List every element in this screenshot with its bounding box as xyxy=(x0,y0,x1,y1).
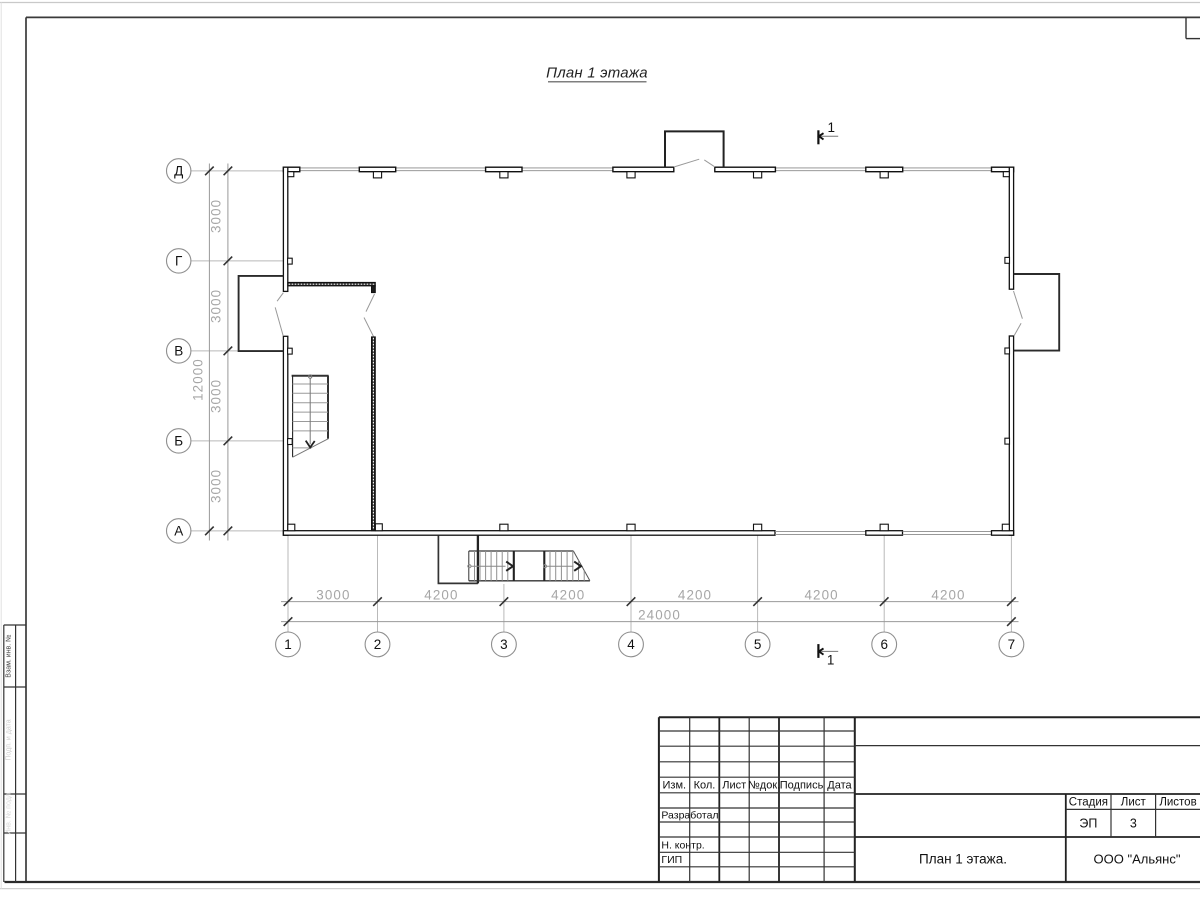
svg-text:4200: 4200 xyxy=(931,587,965,602)
svg-text:7: 7 xyxy=(1008,637,1016,652)
svg-text:Лист: Лист xyxy=(722,780,746,792)
svg-text:План 1 этажа: План 1 этажа xyxy=(546,65,648,82)
svg-text:ЭП: ЭП xyxy=(1079,817,1097,831)
svg-text:12000: 12000 xyxy=(190,358,205,401)
svg-text:Д: Д xyxy=(174,164,183,179)
svg-text:3000: 3000 xyxy=(316,587,350,602)
svg-text:3: 3 xyxy=(500,637,508,652)
svg-text:3: 3 xyxy=(1130,817,1137,831)
svg-text:Г: Г xyxy=(175,254,183,269)
svg-text:Листов: Листов xyxy=(1159,797,1196,809)
svg-text:А: А xyxy=(174,524,183,539)
svg-text:24000: 24000 xyxy=(638,607,681,622)
svg-text:Подпись: Подпись xyxy=(780,780,824,792)
svg-text:В: В xyxy=(174,344,183,359)
svg-text:Разработал: Разработал xyxy=(661,810,718,822)
svg-text:Б: Б xyxy=(174,434,183,449)
svg-text:3000: 3000 xyxy=(208,289,223,323)
svg-text:План 1 этажа.: План 1 этажа. xyxy=(919,852,1007,867)
svg-text:2: 2 xyxy=(374,637,382,652)
svg-text:Инв. № подл.: Инв. № подл. xyxy=(6,791,13,835)
svg-text:6: 6 xyxy=(880,637,888,652)
svg-text:ООО "Альянс": ООО "Альянс" xyxy=(1094,851,1181,866)
svg-text:4200: 4200 xyxy=(804,587,838,602)
svg-text:3000: 3000 xyxy=(208,379,223,413)
svg-text:1: 1 xyxy=(827,653,835,668)
svg-text:3000: 3000 xyxy=(208,469,223,503)
svg-text:4200: 4200 xyxy=(551,587,585,602)
svg-text:Лист: Лист xyxy=(1121,797,1147,809)
svg-text:Взам. инв. №: Взам. инв. № xyxy=(6,634,13,677)
svg-text:5: 5 xyxy=(754,637,762,652)
svg-text:1: 1 xyxy=(284,637,292,652)
svg-text:Подп. и дата: Подп. и дата xyxy=(6,719,13,760)
svg-text:Стадия: Стадия xyxy=(1069,797,1108,809)
svg-text:4: 4 xyxy=(627,637,635,652)
svg-text:3000: 3000 xyxy=(208,199,223,233)
svg-text:Дата: Дата xyxy=(827,780,852,792)
svg-text:4200: 4200 xyxy=(678,587,712,602)
svg-text:Н. контр.: Н. контр. xyxy=(661,840,704,852)
svg-text:ГИП: ГИП xyxy=(661,854,682,866)
svg-text:1: 1 xyxy=(827,120,835,135)
svg-text:4200: 4200 xyxy=(424,587,458,602)
svg-text:Кол.: Кол. xyxy=(694,780,716,792)
svg-text:№док.: №док. xyxy=(748,780,780,792)
svg-text:Изм.: Изм. xyxy=(663,780,687,792)
